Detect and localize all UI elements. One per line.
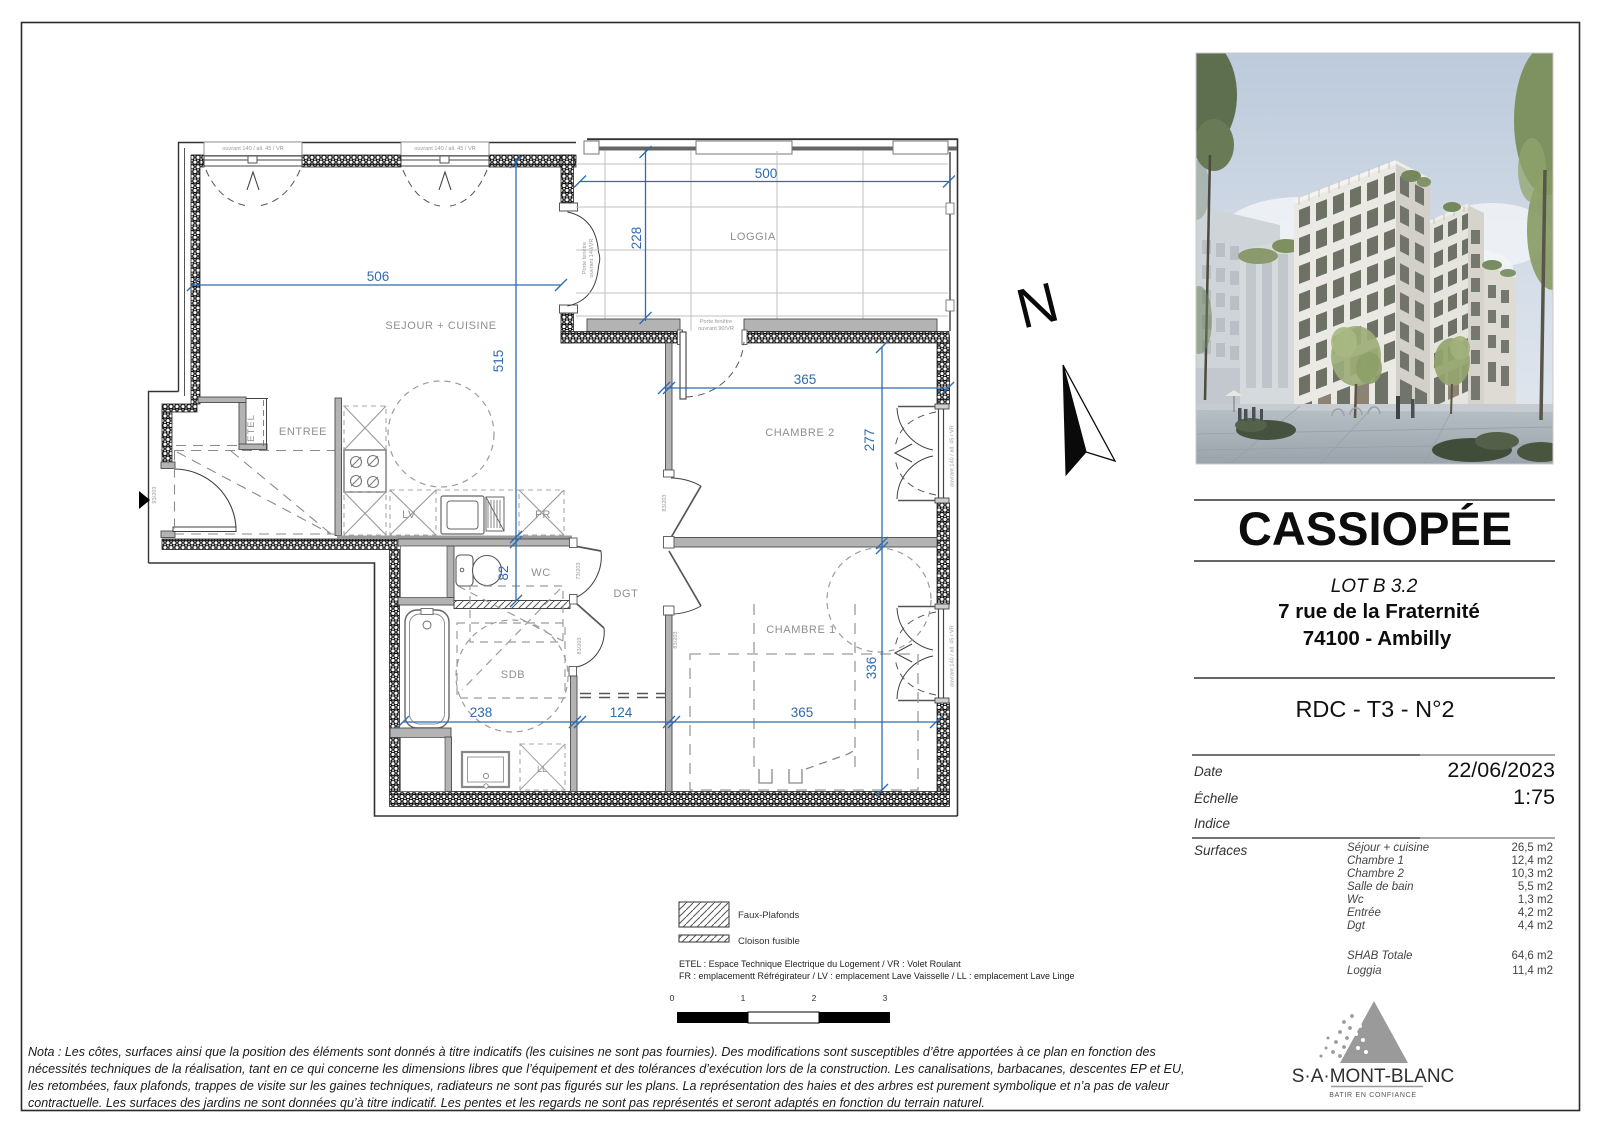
svg-text:RDC - T3 - N°2: RDC - T3 - N°2 (1295, 696, 1454, 722)
svg-text:11,4 m2: 11,4 m2 (1512, 965, 1553, 977)
svg-text:ETEL : Espace Technique Electr: ETEL : Espace Technique Electrique du Lo… (679, 959, 961, 969)
svg-text:7 rue de la Fraternité: 7 rue de la Fraternité (1278, 600, 1480, 623)
svg-text:les retombées, faux plafonds,: les retombées, faux plafonds, trappes de… (28, 1079, 1170, 1093)
svg-text:Chambre 2: Chambre 2 (1347, 868, 1404, 880)
svg-text:ouvrant 140 / all. 45 / VR: ouvrant 140 / all. 45 / VR (950, 625, 956, 687)
svg-text:74100 - Ambilly: 74100 - Ambilly (1303, 627, 1452, 650)
svg-text:SDB: SDB (501, 669, 525, 681)
svg-text:22/06/2023: 22/06/2023 (1447, 758, 1555, 782)
svg-text:1:75: 1:75 (1513, 785, 1555, 809)
svg-text:Nota : Les côtes, surfaces ain: Nota : Les côtes, surfaces ainsi que la … (28, 1045, 1156, 1059)
svg-text:3: 3 (883, 993, 888, 1003)
svg-text:Salle de bain: Salle de bain (1347, 881, 1414, 893)
svg-text:SEJOUR + CUISINE: SEJOUR + CUISINE (385, 320, 496, 332)
svg-text:nécessités techniques de la ré: nécessités techniques de la réalisation,… (28, 1062, 1184, 1076)
svg-text:Surfaces: Surfaces (1194, 843, 1248, 858)
svg-text:Porte fenêtre: Porte fenêtre (582, 242, 588, 274)
svg-text:1: 1 (741, 993, 746, 1003)
svg-text:26,5 m2: 26,5 m2 (1511, 842, 1553, 854)
svg-text:515: 515 (491, 350, 506, 373)
svg-text:Porte fenêtre: Porte fenêtre (700, 319, 732, 325)
svg-text:73/203: 73/203 (576, 562, 582, 579)
svg-text:CASSIOPÉE: CASSIOPÉE (1238, 502, 1512, 555)
svg-text:Dgt: Dgt (1347, 920, 1366, 932)
svg-text:ouvrant 90/VR: ouvrant 90/VR (698, 326, 734, 332)
svg-text:ETEL: ETEL (246, 414, 257, 442)
svg-text:FR: FR (535, 509, 551, 521)
svg-text:LOT B 3.2: LOT B 3.2 (1331, 576, 1418, 597)
svg-text:4,2 m2: 4,2 m2 (1518, 907, 1553, 919)
svg-text:1,3 m2: 1,3 m2 (1518, 894, 1553, 906)
svg-text:LV: LV (402, 509, 416, 521)
svg-text:Wc: Wc (1347, 894, 1364, 906)
svg-text:2: 2 (812, 993, 817, 1003)
svg-text:Loggia: Loggia (1347, 965, 1382, 977)
svg-text:500: 500 (755, 166, 778, 181)
svg-text:365: 365 (794, 372, 817, 387)
svg-text:Échelle: Échelle (1194, 791, 1238, 806)
svg-text:Faux-Plafonds: Faux-Plafonds (738, 910, 800, 921)
svg-text:Séjour + cuisine: Séjour + cuisine (1347, 842, 1429, 854)
svg-text:Date: Date (1194, 764, 1223, 779)
svg-text:CHAMBRE 2: CHAMBRE 2 (765, 427, 835, 439)
svg-text:336: 336 (864, 657, 879, 680)
svg-text:Cloison fusible: Cloison fusible (738, 936, 800, 947)
svg-text:228: 228 (629, 227, 644, 250)
svg-text:277: 277 (862, 429, 877, 452)
svg-text:BATIR EN CONFIANCE: BATIR EN CONFIANCE (1329, 1092, 1417, 1099)
svg-text:0: 0 (670, 993, 675, 1003)
svg-text:LOGGIA: LOGGIA (730, 231, 776, 243)
svg-text:365: 365 (791, 705, 814, 720)
svg-text:LL: LL (537, 764, 547, 774)
svg-text:83/203: 83/203 (577, 637, 583, 654)
svg-text:ouvrant 140 / all. 45 / VR: ouvrant 140 / all. 45 / VR (222, 146, 284, 152)
svg-text:ouvrant 140 / all. 45 / VR: ouvrant 140 / all. 45 / VR (950, 425, 956, 487)
svg-text:10,3 m2: 10,3 m2 (1511, 868, 1553, 880)
svg-text:506: 506 (367, 269, 390, 284)
svg-text:82: 82 (496, 565, 511, 580)
svg-text:ouvrant 140 / all. 45 / VR: ouvrant 140 / all. 45 / VR (414, 146, 476, 152)
svg-text:Chambre 1: Chambre 1 (1347, 855, 1404, 867)
svg-text:ouvrant 140/VR: ouvrant 140/VR (589, 239, 595, 278)
svg-text:83/203: 83/203 (673, 631, 679, 648)
svg-text:238: 238 (470, 705, 493, 720)
svg-text:Indice: Indice (1194, 816, 1230, 831)
svg-text:64,6 m2: 64,6 m2 (1511, 950, 1553, 962)
svg-text:FR : emplacementt Réfrégirateu: FR : emplacementt Réfrégirateur / LV : e… (679, 971, 1075, 981)
svg-text:WC: WC (531, 567, 551, 579)
svg-text:ENTREE: ENTREE (279, 426, 327, 438)
svg-text:CHAMBRE 1: CHAMBRE 1 (766, 624, 836, 636)
svg-text:Entrée: Entrée (1347, 907, 1381, 919)
svg-text:124: 124 (610, 705, 633, 720)
svg-text:contractuelle. Les surfaces de: contractuelle. Les surfaces des jardins … (28, 1096, 985, 1110)
svg-text:83/203: 83/203 (662, 494, 668, 511)
svg-text:5,5 m2: 5,5 m2 (1518, 881, 1553, 893)
svg-text:S·A·MONT-BLANC: S·A·MONT-BLANC (1292, 1066, 1455, 1087)
svg-text:SHAB Totale: SHAB Totale (1347, 950, 1412, 962)
svg-text:93/203: 93/203 (152, 486, 158, 503)
svg-text:DGT: DGT (613, 588, 638, 600)
svg-text:4,4 m2: 4,4 m2 (1518, 920, 1553, 932)
svg-text:12,4 m2: 12,4 m2 (1511, 855, 1553, 867)
